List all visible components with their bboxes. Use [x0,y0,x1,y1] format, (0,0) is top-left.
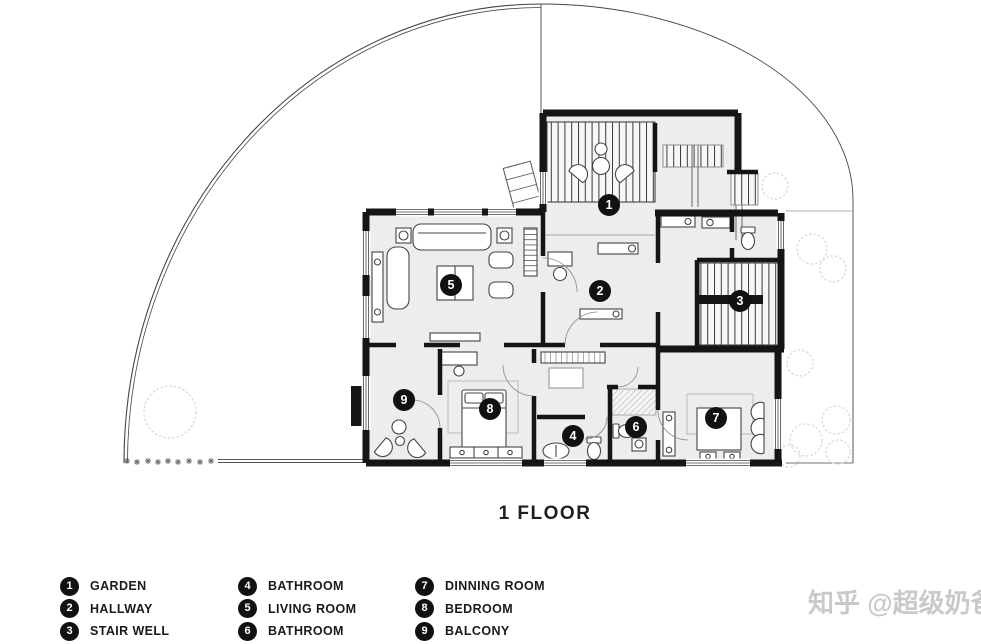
round-table [593,158,610,175]
legend-item-bathroom-2: 6 BATHROOM [238,620,403,643]
room-marker-garden: 1 [598,194,620,216]
legend-item-bathroom: 4 BATHROOM [238,575,403,598]
watermark: 知乎 @超级奶爸 [808,583,981,620]
legend-label: BATHROOM [268,624,344,638]
sofa [413,224,491,250]
legend-label: HALLWAY [90,602,153,616]
legend-column-2: 4 BATHROOM 5 LIVING ROOM 6 BATHROOM [238,575,403,643]
room-marker-dinning-room: 7 [705,407,727,429]
legend-badge: 8 [415,599,434,618]
chaise [387,247,409,309]
dressing-table [549,368,583,388]
legend-label: STAIR WELL [90,624,169,638]
legend-badge: 3 [60,622,79,641]
legend-badge: 4 [238,577,257,596]
legend-item-garden: 1 GARDEN [60,575,225,598]
bedroom-desk [441,352,477,365]
legend-item-stair-well: 3 STAIR WELL [60,620,225,643]
garden-ramp [503,161,542,215]
legend-badge: 6 [238,622,257,641]
room-marker-balcony: 9 [393,389,415,411]
legend-label: BATHROOM [268,579,344,593]
legend-badge: 1 [60,577,79,596]
balcony-chair [392,420,406,434]
legend-label: DINNING ROOM [445,579,545,593]
legend-item-living-room: 5 LIVING ROOM [238,598,403,621]
pouf [489,282,513,298]
outdoor-stair [731,173,758,205]
floor-title: 1 FLOOR [445,503,645,525]
legend-column-3: 7 DINNING ROOM 8 BEDROOM 9 BALCONY [415,575,605,643]
legend-item-balcony: 9 BALCONY [415,620,605,643]
floor-plan-page: 1 2 3 4 5 6 7 8 9 1 FLOOR 1 GARDEN 2 HAL… [0,0,981,644]
legend-badge: 7 [415,577,434,596]
room-marker-bedroom: 8 [479,398,501,420]
room-marker-bathroom-2: 6 [625,416,647,438]
porch-steps [663,145,723,167]
legend-label: BALCONY [445,624,510,638]
balcony-table [396,437,405,446]
legend-item-dinning-room: 7 DINNING ROOM [415,575,605,598]
room-marker-stair-well: 3 [729,290,751,312]
legend-badge: 9 [415,622,434,641]
legend-badge: 2 [60,599,79,618]
fence-shrubs [124,458,214,465]
tv-cabinet [430,333,480,341]
legend-column-1: 1 GARDEN 2 HALLWAY 3 STAIR WELL [60,575,225,643]
wc-sink [702,217,730,228]
legend-label: LIVING ROOM [268,602,356,616]
room-marker-living-room: 5 [440,274,462,296]
shower [612,389,656,415]
wardrobe [541,352,605,363]
legend-label: GARDEN [90,579,147,593]
legend-badge: 5 [238,599,257,618]
legend-label: BEDROOM [445,602,513,616]
bookshelf [524,228,537,276]
pouf [489,252,513,268]
floor-plan-svg [0,0,981,570]
legend-item-bedroom: 8 BEDROOM [415,598,605,621]
room-marker-hallway: 2 [589,280,611,302]
window-h [396,208,428,217]
window-v [362,231,371,275]
legend-item-hallway: 2 HALLWAY [60,598,225,621]
room-marker-bathroom: 4 [562,425,584,447]
